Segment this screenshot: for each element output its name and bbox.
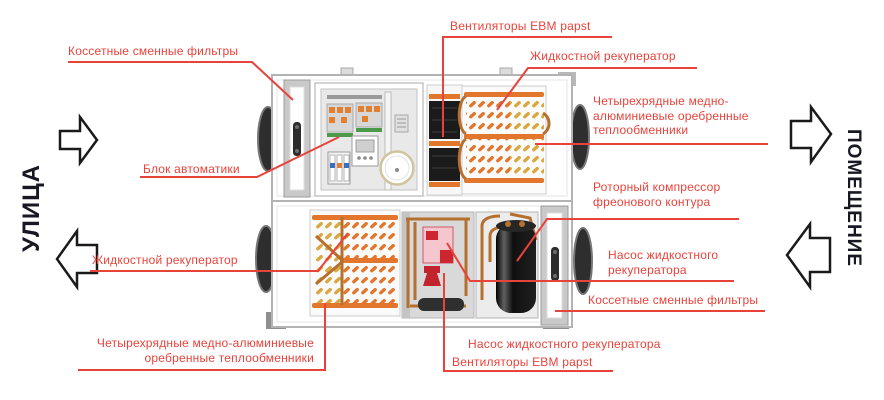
breaker-toggle (344, 163, 349, 168)
label-recuperator-bottom: Жидкостной рекуператор (92, 253, 238, 268)
fan-rail (429, 141, 460, 146)
label-pump-right: Насос жидкостного рекуператора (608, 248, 718, 277)
breaker-toggle (337, 163, 342, 168)
controller-button (369, 156, 373, 160)
handle-knob (553, 274, 557, 278)
pump-detail (440, 250, 453, 263)
label-hx-right: Четырехрядные медно- алюминиевые оребрен… (593, 94, 749, 138)
hx-header-top (312, 215, 398, 220)
label-hx-bottom: Четырехрядные медно-алюминиевые оребренн… (60, 336, 314, 365)
label-hx-right-line1: Четырехрядные медно- (593, 94, 749, 109)
hx-header-bottom (464, 178, 544, 183)
arrow-street-out-icon (57, 231, 97, 287)
pump-valve-flange (424, 266, 440, 273)
terminal (329, 117, 335, 123)
label-pump-right-line2: рекуператора (608, 263, 718, 278)
label-hx-right-line3: теплообменники (593, 123, 749, 138)
automation-cabinet (315, 83, 423, 196)
label-compressor: Роторный компрессор фреонового контура (593, 180, 720, 209)
ahu-diagram: Коссетные сменные фильтры Вентиляторы EB… (0, 0, 884, 400)
fan-rail (429, 182, 460, 187)
terminal-strip-green-2 (356, 128, 382, 132)
label-fans-top: Вентиляторы EBM papst (450, 19, 591, 34)
label-recuperator-top: Жидкостной рекуператор (530, 49, 676, 64)
hx-coil-gold (314, 221, 344, 303)
compressor-fitting (505, 221, 511, 227)
label-compressor-line1: Роторный компрессор (593, 180, 720, 195)
terminal (358, 106, 364, 112)
label-filter-right: Коссетные сменные фильтры (588, 293, 758, 308)
leader-filter-top (68, 62, 293, 100)
label-pump-bottom: Насос жидкостного рекуператора (468, 337, 661, 352)
duct-right-bottom (574, 228, 592, 294)
label-hx-bottom-line1: Четырехрядные медно-алюминиевые (60, 336, 314, 351)
terminal (329, 107, 335, 113)
controller-button (357, 156, 361, 160)
handle-knob (553, 250, 557, 254)
terminal (337, 107, 343, 113)
strainer-cylinder (418, 298, 464, 311)
duct-right-top (571, 105, 589, 169)
fan-unit-2 (429, 148, 460, 181)
handle-knob (295, 149, 299, 153)
side-label-room: ПОМЕЩЕНИЕ (838, 103, 864, 293)
filter-bottom-assembly (541, 206, 568, 325)
terminal-strip-green-1 (327, 133, 353, 137)
hx-header-mid (340, 258, 398, 263)
label-hx-bottom-line2: оребренные теплообменники (60, 351, 314, 366)
compressor-compartment (476, 212, 538, 318)
handle-knob (295, 125, 299, 129)
rotary-compressor (496, 224, 536, 313)
controller-button (363, 156, 367, 160)
terminal (362, 116, 368, 122)
terminal (366, 106, 372, 112)
pump-compartment (402, 212, 474, 318)
terminal (341, 117, 347, 123)
label-hx-right-line2: алюминиевые оребренные (593, 109, 749, 124)
hx-header-mid (464, 134, 544, 139)
din-rail (327, 95, 382, 99)
compressor-fitting (519, 221, 525, 227)
compressor-top (496, 220, 536, 232)
arrow-street-in-icon (60, 117, 97, 163)
label-automation: Блок автоматики (143, 162, 240, 177)
filter-top-assembly (284, 80, 310, 197)
label-fans-bottom: Вентиляторы EBM papst (452, 355, 593, 370)
terminal (345, 107, 351, 113)
fans-top-assembly (427, 85, 462, 195)
breaker-toggle (330, 163, 335, 168)
terminal (374, 106, 380, 112)
label-compressor-line2: фреонового контура (593, 195, 720, 210)
fan-rail (429, 94, 460, 99)
controller-display (356, 140, 374, 152)
hx-header-top (464, 92, 544, 97)
pump-detail (426, 231, 438, 240)
dial-center (395, 168, 399, 172)
arrow-room-in-icon (791, 107, 831, 162)
hx-top-assembly (459, 86, 549, 194)
label-pump-right-line1: Насос жидкостного (608, 248, 718, 263)
side-label-street: УЛИЦА (18, 146, 48, 270)
arrow-room-out-icon (787, 224, 830, 287)
label-filter-top: Коссетные сменные фильтры (68, 44, 238, 59)
